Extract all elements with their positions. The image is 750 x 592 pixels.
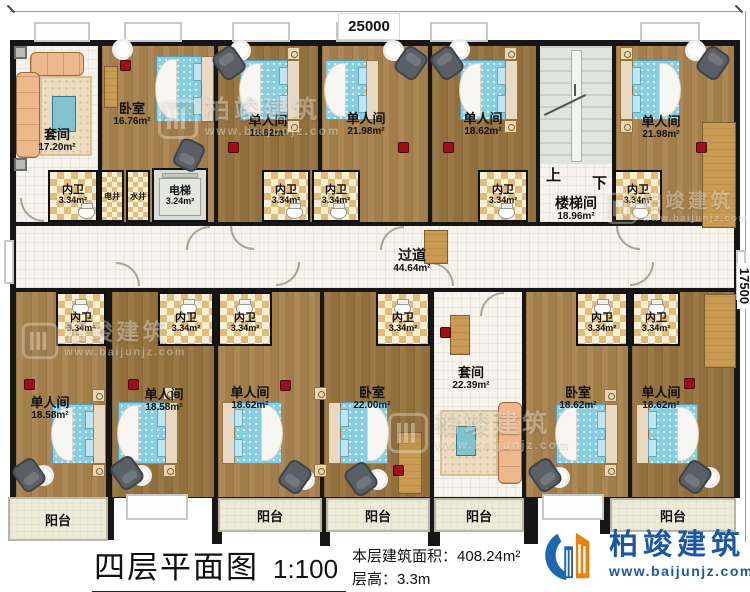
wall-stub [524, 494, 538, 544]
room-label-single-b3: 单人间18.62m² [210, 386, 290, 411]
toilet-icon [498, 206, 515, 219]
window [640, 22, 700, 42]
stair-arrow [574, 84, 576, 96]
bath-label: 内卫3.34m² [158, 312, 214, 334]
red-marker [696, 142, 707, 153]
room-label-corridor: 过道44.64m² [352, 248, 472, 274]
bed [556, 404, 618, 464]
bed [620, 60, 680, 120]
desk [450, 315, 470, 355]
bed [328, 402, 388, 464]
room-label-single-t4: 单人间21.98m² [621, 115, 701, 140]
room-label-stairwell: 楼梯间18.96m² [541, 196, 611, 222]
balcony-label: 阳台 [660, 506, 686, 525]
scale-text: 1:100 [273, 554, 338, 585]
brand-name: 柏竣建筑 [609, 531, 750, 560]
window [34, 22, 90, 42]
balcony-label: 阳台 [466, 506, 492, 525]
red-marker [443, 142, 454, 153]
room-label-single-t2: 单人间21.98m² [326, 112, 406, 137]
bath-label: 内卫3.34m² [376, 312, 430, 334]
toilet-icon [78, 206, 95, 219]
stairs-down-label: 下 [592, 172, 607, 193]
nightstand [620, 47, 633, 60]
nightstand [604, 464, 617, 477]
red-marker [228, 142, 239, 153]
window [124, 22, 182, 42]
coffee-table [456, 426, 476, 456]
toilet-icon [286, 206, 303, 219]
red-marker [398, 142, 409, 153]
balcony-label: 阳台 [257, 506, 283, 525]
floor-area-line: 本层建筑面积：408.24m² [352, 546, 520, 569]
bath-label: 内卫3.34m² [632, 312, 680, 334]
stair-rail [571, 50, 582, 162]
nightstand [314, 464, 327, 477]
bath-label: 内卫3.34m² [56, 312, 106, 334]
water-shaft: 水井 [126, 170, 150, 222]
room-label-elevator: 电梯3.24m² [152, 185, 208, 207]
room-label-single-b2: 单人间18.58m² [124, 388, 204, 413]
floor-height-line: 层高：3.3m [352, 569, 520, 592]
nightstand [504, 47, 517, 60]
shaft-label: 水井 [130, 191, 146, 202]
room-label-single-t1: 单人间18.62m² [228, 114, 308, 139]
toilet-icon [632, 206, 649, 219]
brand-website: www.baijunjz.com [609, 563, 750, 579]
room-label-bedroom-b1: 卧室22.00m² [332, 386, 412, 411]
electric-shaft: 电井 [100, 170, 124, 222]
nightstand [163, 464, 176, 477]
stairs-up-label: 上 [546, 164, 561, 185]
shaft-label: 电井 [104, 191, 120, 202]
balcony: 阳台 [8, 497, 108, 541]
floor-info: 本层建筑面积：408.24m² 层高：3.3m [352, 546, 520, 591]
balcony-label: 阳台 [45, 510, 71, 529]
top-dimension-line [10, 11, 741, 12]
red-marker [393, 465, 404, 476]
sofa [498, 402, 522, 484]
sofa [30, 52, 84, 76]
bath-label: 内卫3.34m² [614, 184, 662, 206]
room-label-suite-top: 套间17.20m² [17, 128, 97, 153]
toilet-icon [330, 206, 347, 219]
window [232, 22, 290, 42]
window [126, 494, 188, 520]
balcony: 阳台 [218, 498, 322, 532]
desk [704, 294, 736, 368]
bed [240, 60, 300, 120]
right-dimension-label: 17500 [737, 263, 750, 309]
room-label-single-b4: 单人间18.62m² [621, 386, 701, 411]
red-marker [120, 60, 131, 71]
bath-label: 内卫3.34m² [262, 184, 310, 206]
balcony: 阳台 [326, 498, 430, 532]
balcony-label: 阳台 [365, 506, 391, 525]
room-label-bedroom-b2: 卧室18.62m² [538, 386, 618, 411]
bath-label: 内卫3.34m² [576, 312, 628, 334]
window [542, 494, 604, 520]
bath-label: 内卫3.34m² [48, 184, 98, 206]
bed [636, 404, 698, 464]
floor-plan: 25000 17500 上 下 电井 水井 [0, 0, 750, 592]
brand-logo-icon [543, 524, 601, 586]
nightstand [287, 47, 300, 60]
bath-label: 内卫3.34m² [478, 184, 528, 206]
nightstand [92, 389, 105, 402]
room-label-bedroom-top: 卧室16.76m² [96, 102, 168, 127]
top-dimension-label: 25000 [338, 13, 400, 40]
bath-label: 内卫3.34m² [312, 184, 360, 206]
room-label-single-t3: 单人间18.62m² [443, 112, 523, 137]
red-marker [440, 327, 451, 338]
red-marker [24, 379, 35, 390]
bath-label: 内卫3.34m² [218, 312, 272, 334]
desk [702, 122, 736, 228]
desk [398, 432, 422, 494]
nightstand [314, 387, 327, 400]
room-label-single-b1: 单人间18.58m² [12, 396, 88, 421]
brand-block: 柏竣建筑 www.baijunjz.com [543, 524, 750, 586]
window [4, 240, 14, 284]
bed [222, 402, 282, 464]
side-table [14, 46, 27, 59]
drawing-title: 四层平面图 1:100 [92, 542, 346, 592]
title-text: 四层平面图 [94, 542, 259, 587]
side-table [14, 158, 27, 171]
balcony: 阳台 [434, 498, 524, 532]
ceiling-lamp [115, 42, 130, 57]
nightstand [92, 464, 105, 477]
window [430, 22, 488, 42]
room-label-suite-bottom: 套间22.39m² [431, 366, 511, 391]
